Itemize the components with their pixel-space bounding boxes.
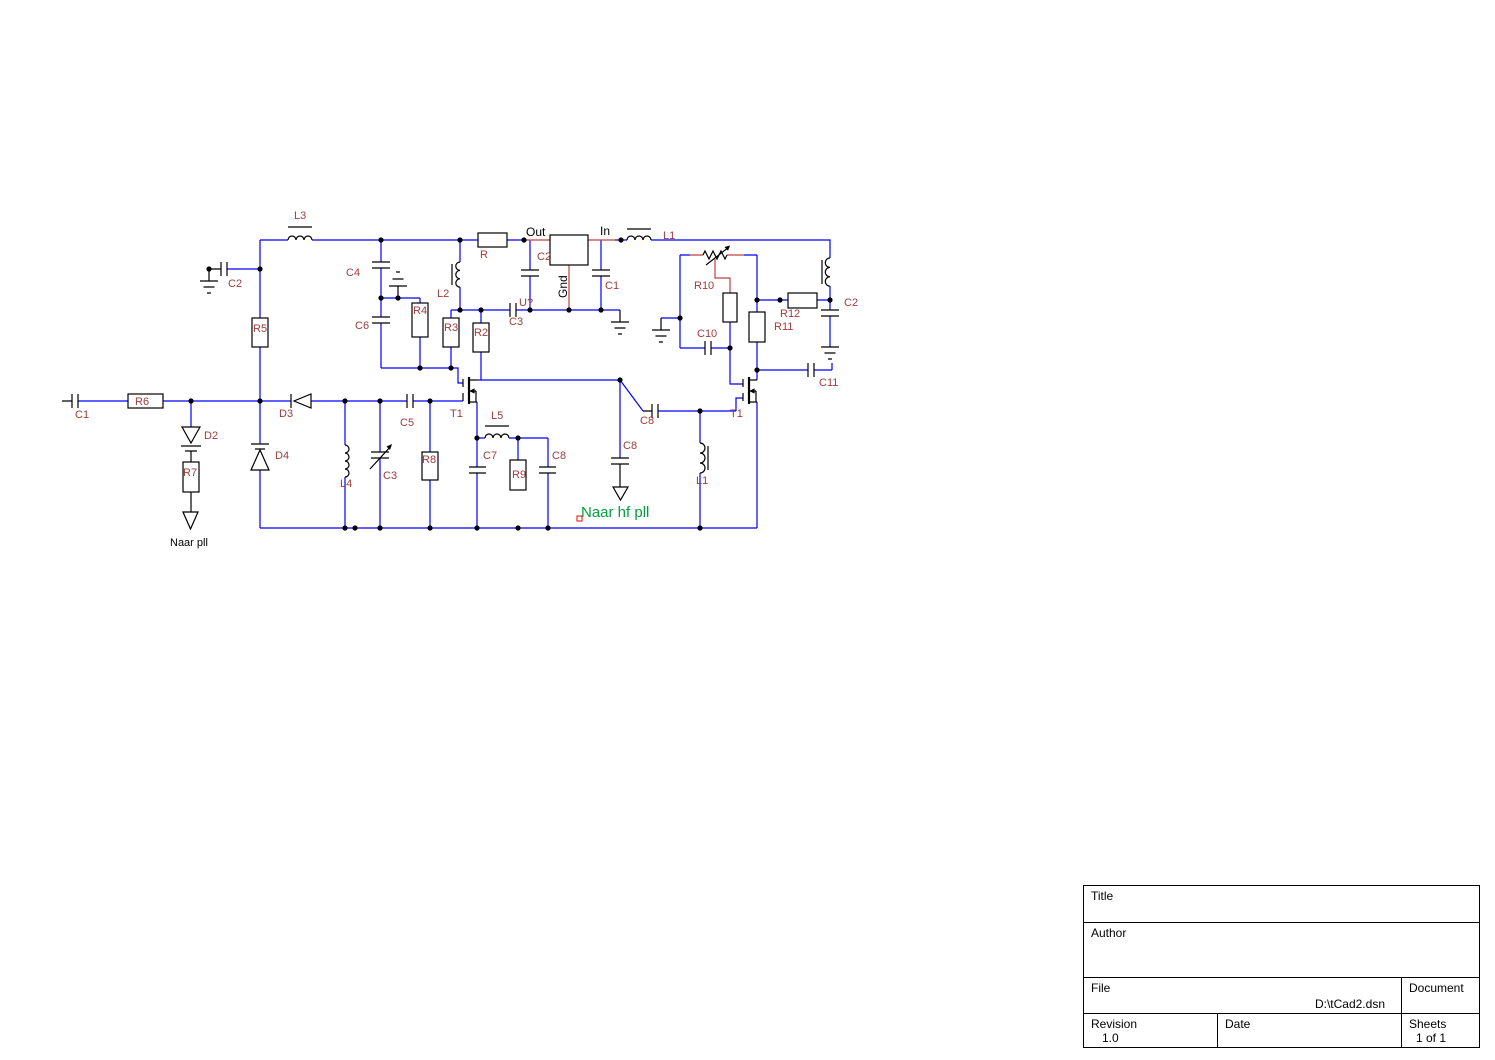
- sheets-value: 1 of 1: [1416, 1031, 1446, 1045]
- label-D4: D4: [275, 450, 289, 462]
- label-D2: D2: [204, 430, 218, 442]
- label-R11: R11: [774, 321, 793, 333]
- title-block-author-row: Author: [1084, 923, 1479, 978]
- label-T1-left: T1: [450, 408, 463, 420]
- title-block-revision-cell: Revision 1.0: [1084, 1014, 1218, 1047]
- label-D3: D3: [279, 408, 293, 420]
- title-block-date-cell: Date: [1218, 1014, 1402, 1047]
- label-C2-right: C2: [844, 297, 858, 309]
- label-C6: C6: [355, 320, 369, 332]
- label-L1-bottom: L1: [696, 475, 708, 487]
- port-naar-pll-icon: [183, 512, 198, 529]
- varicap-D4: [251, 444, 269, 470]
- file-label: File: [1091, 981, 1110, 995]
- author-label: Author: [1091, 926, 1126, 940]
- net-label-naar-pll: Naar pll: [170, 537, 208, 549]
- label-R7: R7: [183, 467, 197, 479]
- resistor-R: [478, 233, 507, 247]
- label-R6: R6: [135, 396, 149, 408]
- resistor-R12: [788, 293, 817, 308]
- label-R3: R3: [444, 322, 458, 334]
- label-C2-reg: C2: [537, 251, 551, 263]
- diodes: [181, 394, 311, 470]
- label-L5: L5: [491, 410, 503, 422]
- label-R5: R5: [253, 323, 267, 335]
- pin-label-in: In: [600, 224, 610, 238]
- label-C4: C4: [346, 267, 360, 279]
- revision-value: 1.0: [1102, 1031, 1119, 1045]
- label-L4: L4: [340, 478, 352, 490]
- title-block-title-row: Title: [1084, 886, 1479, 923]
- component-leads: [62, 269, 652, 512]
- mosfet-T1-right: [743, 377, 757, 404]
- label-R2: R2: [474, 327, 488, 339]
- date-label: Date: [1225, 1017, 1250, 1031]
- diode-D3: [291, 394, 311, 408]
- label-C1-reg: C1: [605, 280, 619, 292]
- label-U: U?: [519, 297, 533, 309]
- title-block-sheets-cell: Sheets 1 of 1: [1402, 1014, 1479, 1047]
- label-L1-top: L1: [663, 230, 675, 242]
- pin-wires: [524, 240, 744, 310]
- net-labels: Out In Gnd Naar pll Naar hf pll: [170, 224, 649, 549]
- inductor-L2: [452, 262, 460, 287]
- label-R9: R9: [512, 469, 526, 481]
- sheets-label: Sheets: [1409, 1017, 1446, 1031]
- label-C3-reg: C3: [509, 316, 523, 328]
- ground-icon-inverted: [389, 272, 407, 298]
- label-L2: L2: [437, 288, 449, 300]
- label-C8-1: C8: [552, 450, 566, 462]
- label-C2-left: C2: [228, 278, 242, 290]
- ground-icon: [821, 347, 839, 359]
- inductor-L1-top: [627, 229, 651, 240]
- label-C5: C5: [400, 417, 414, 429]
- revision-label: Revision: [1091, 1017, 1137, 1031]
- varicap-D2: [181, 427, 201, 451]
- label-R12: R12: [780, 308, 800, 320]
- label-R: R: [480, 249, 488, 261]
- reference-labels: L3 C2 R5 C4 C6 R4 L2 R3 R2 R C2 C1 L1 U?…: [75, 210, 858, 490]
- ground-icon: [611, 310, 629, 334]
- pin-label-out: Out: [526, 225, 546, 239]
- label-L3: L3: [294, 210, 306, 222]
- label-C10: C10: [697, 328, 717, 340]
- label-R8: R8: [422, 454, 436, 466]
- title-block-file-cell: File D:\tCad2.dsn: [1084, 978, 1402, 1013]
- label-C1-in: C1: [75, 409, 89, 421]
- ground-icon: [652, 318, 670, 342]
- potentiometer-R10: [703, 246, 730, 266]
- resistor-R11: [749, 312, 765, 342]
- variable-cap-arrowhead: [387, 444, 393, 450]
- resistor-bodies: [128, 233, 817, 492]
- label-R10: R10: [694, 280, 714, 292]
- inductor-L4: [345, 445, 349, 477]
- title-label: Title: [1091, 889, 1113, 903]
- mosfet-T1-left: [463, 377, 477, 404]
- label-R4: R4: [413, 305, 427, 317]
- label-T1-right: T1: [730, 408, 743, 420]
- document-label: Document: [1409, 981, 1464, 995]
- port-naar-hf-pll-icon: [613, 487, 628, 500]
- voltage-regulator-U: [550, 235, 588, 265]
- label-C8-2: C8: [623, 440, 637, 452]
- file-value: D:\tCad2.dsn: [1315, 997, 1385, 1011]
- ground-icon: [200, 269, 218, 293]
- title-block: Title Author File D:\tCad2.dsn Document …: [1083, 885, 1480, 1048]
- ports: [183, 487, 628, 529]
- title-block-document-cell: Document: [1402, 978, 1479, 1013]
- inductor-L1-bottom: [700, 443, 708, 473]
- label-C7: C7: [483, 450, 497, 462]
- label-C8-3: C8: [640, 415, 654, 427]
- net-label-naar-hf-pll: Naar hf pll: [581, 504, 649, 521]
- resistor-R10-body: [723, 293, 737, 322]
- ground-symbols: [200, 269, 839, 359]
- pin-label-gnd: Gnd: [556, 275, 570, 298]
- label-C11: C11: [819, 377, 838, 389]
- inductor-right-top: [822, 258, 830, 286]
- wire-nets: [78, 240, 832, 528]
- inductor-L3: [288, 227, 312, 240]
- label-C3-var: C3: [383, 470, 397, 482]
- inductor-L5: [485, 426, 509, 438]
